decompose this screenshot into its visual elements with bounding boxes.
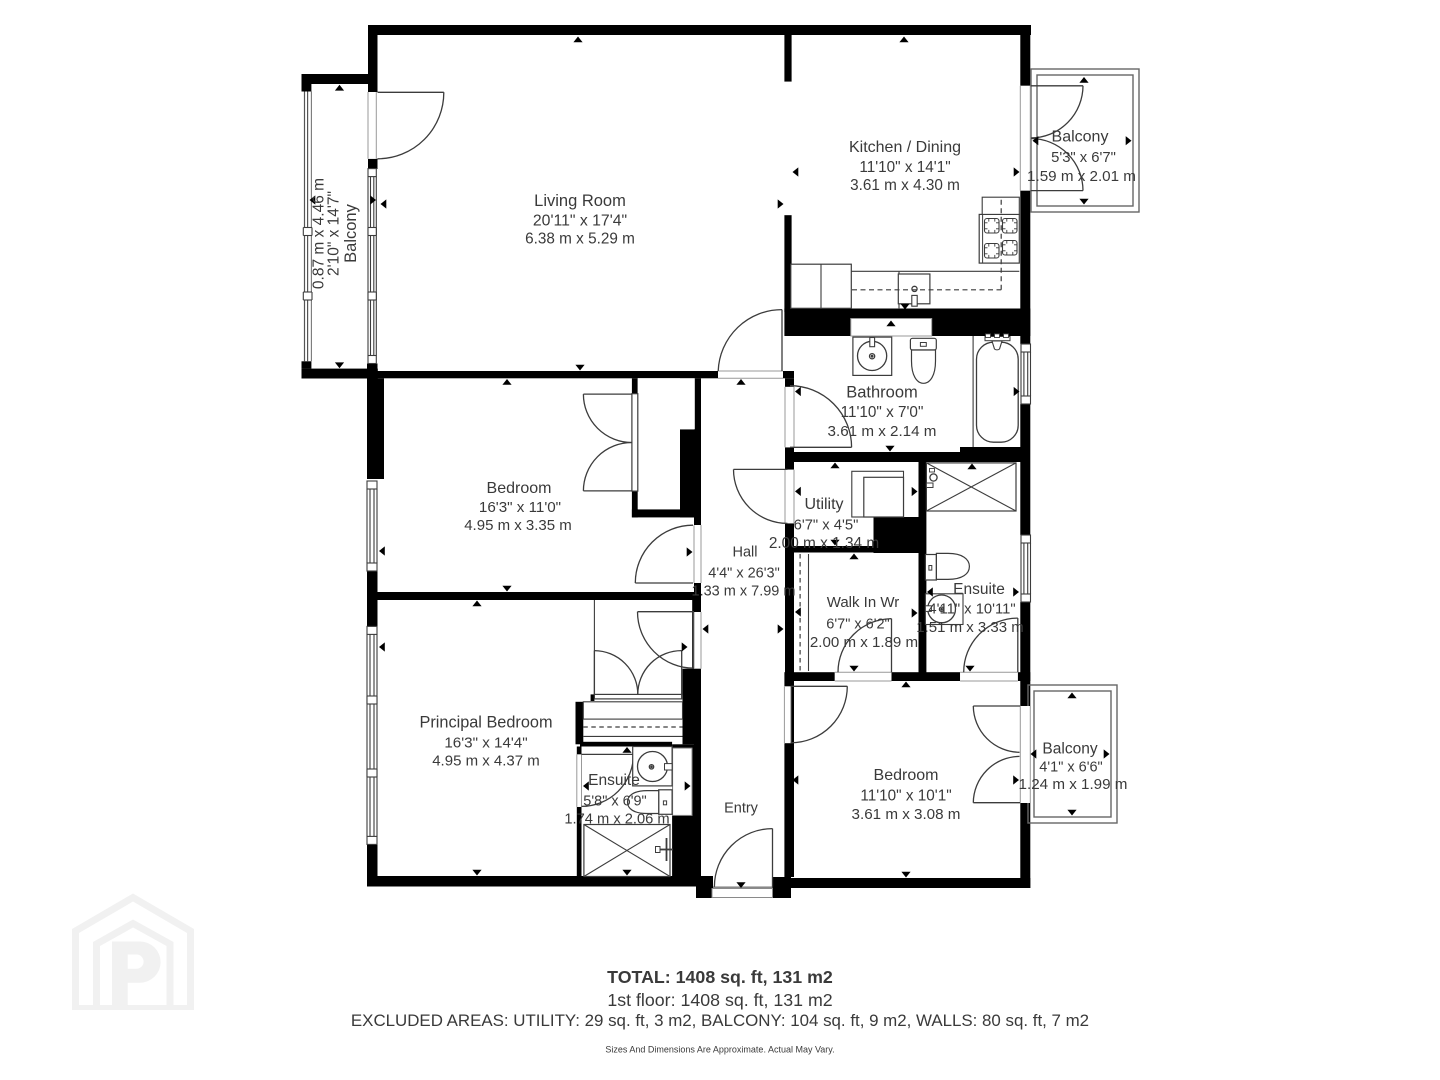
svg-text:Principal Bedroom: Principal Bedroom (419, 714, 552, 732)
svg-text:1.51 m x 3.33 m: 1.51 m x 3.33 m (916, 619, 1024, 636)
svg-text:5'3" x 6'7": 5'3" x 6'7" (1051, 150, 1116, 166)
svg-text:Balcony: Balcony (1052, 129, 1109, 146)
svg-text:Ensuite: Ensuite (953, 581, 1005, 598)
svg-text:Bathroom: Bathroom (846, 384, 918, 402)
svg-text:5'8" x 6'9": 5'8" x 6'9" (583, 794, 646, 810)
svg-text:4.95 m x 4.37 m: 4.95 m x 4.37 m (432, 753, 540, 770)
svg-text:Hall: Hall (733, 545, 758, 561)
svg-text:EXCLUDED AREAS: UTILITY: 29 sq: EXCLUDED AREAS: UTILITY: 29 sq. ft, 3 m2… (351, 1011, 1089, 1030)
svg-text:11'10" x 14'1": 11'10" x 14'1" (859, 159, 950, 176)
svg-text:3.61 m x 3.08 m: 3.61 m x 3.08 m (852, 806, 961, 823)
svg-text:6'7" x 4'5": 6'7" x 4'5" (794, 518, 859, 534)
svg-text:Walk In Wr: Walk In Wr (827, 594, 900, 611)
svg-text:1.59 m x 2.01 m: 1.59 m x 2.01 m (1027, 168, 1136, 185)
svg-text:Sizes And Dimensions Are Appro: Sizes And Dimensions Are Approximate. Ac… (605, 1045, 834, 1055)
svg-text:4'11" x 10'11": 4'11" x 10'11" (928, 602, 1015, 618)
svg-text:6'7" x 6'2": 6'7" x 6'2" (826, 617, 889, 633)
svg-text:TOTAL: 1408 sq. ft, 131 m2: TOTAL: 1408 sq. ft, 131 m2 (607, 967, 833, 987)
svg-text:3.61 m x 4.30 m: 3.61 m x 4.30 m (850, 177, 960, 194)
svg-text:1.24 m x 1.99 m: 1.24 m x 1.99 m (1019, 776, 1128, 793)
svg-text:1.33 m x 7.99 m: 1.33 m x 7.99 m (692, 584, 796, 600)
svg-text:4'1" x 6'6": 4'1" x 6'6" (1039, 760, 1102, 776)
svg-text:2.00 m x 1.34 m: 2.00 m x 1.34 m (769, 535, 879, 552)
svg-text:20'11" x 17'4": 20'11" x 17'4" (533, 213, 627, 230)
svg-text:0.87 m x 4.46 m: 0.87 m x 4.46 m (311, 178, 328, 289)
svg-text:16'3" x 14'4": 16'3" x 14'4" (444, 735, 527, 752)
svg-text:2.00 m x 1.89 m: 2.00 m x 1.89 m (810, 634, 918, 651)
svg-text:Entry: Entry (724, 801, 759, 817)
svg-text:Ensuite: Ensuite (588, 772, 640, 789)
svg-text:4'4" x 26'3": 4'4" x 26'3" (708, 566, 779, 582)
svg-text:Living Room: Living Room (534, 192, 626, 210)
svg-text:Balcony: Balcony (1042, 741, 1097, 758)
svg-text:6.38 m x 5.29 m: 6.38 m x 5.29 m (525, 231, 635, 248)
svg-text:Bedroom: Bedroom (487, 480, 552, 497)
svg-text:1st floor: 1408 sq. ft, 131 m2: 1st floor: 1408 sq. ft, 131 m2 (607, 990, 832, 1010)
svg-text:Kitchen / Dining: Kitchen / Dining (849, 139, 961, 156)
svg-text:Balcony: Balcony (342, 203, 360, 262)
svg-text:1.74 m x 2.06 m: 1.74 m x 2.06 m (564, 812, 669, 828)
svg-text:11'10" x 10'1": 11'10" x 10'1" (860, 788, 951, 805)
svg-text:Utility: Utility (804, 496, 843, 513)
svg-text:Bedroom: Bedroom (874, 767, 939, 784)
svg-text:3.61 m x 2.14 m: 3.61 m x 2.14 m (828, 423, 937, 440)
svg-text:4.95 m x 3.35 m: 4.95 m x 3.35 m (464, 517, 572, 534)
svg-text:11'10" x 7'0": 11'10" x 7'0" (841, 404, 924, 421)
svg-text:16'3" x 11'0": 16'3" x 11'0" (479, 499, 561, 516)
svg-text:2'10" x 14'7": 2'10" x 14'7" (326, 191, 343, 276)
